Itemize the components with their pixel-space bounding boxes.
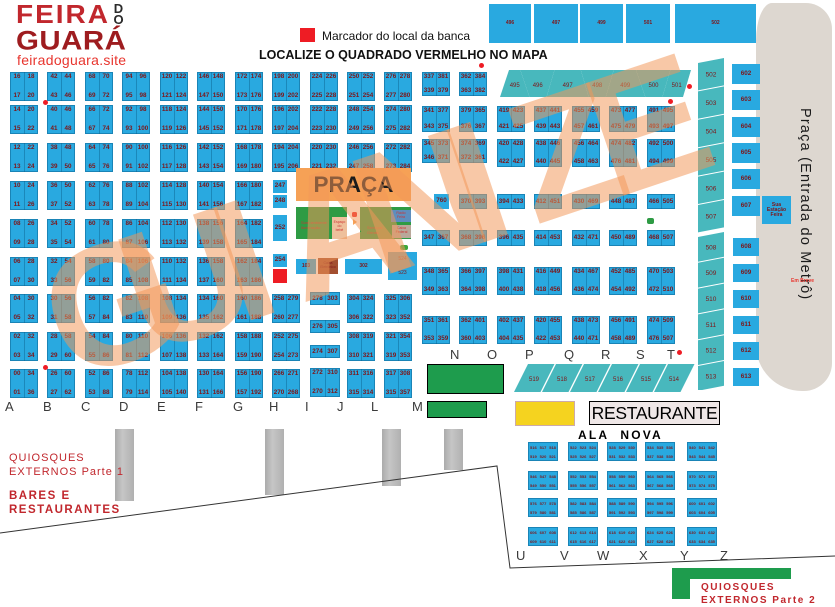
svg-text:499: 499 [620,83,631,89]
svg-text:510: 510 [706,296,717,303]
svg-text:518: 518 [557,377,568,383]
svg-text:496: 496 [533,83,544,89]
svg-text:513: 513 [706,373,717,380]
svg-text:512: 512 [706,348,717,355]
svg-text:516: 516 [613,377,624,383]
svg-text:497: 497 [563,83,574,89]
svg-text:500: 500 [648,83,659,89]
svg-text:511: 511 [706,322,717,329]
svg-text:502: 502 [706,72,717,79]
svg-text:515: 515 [641,377,652,383]
svg-text:508: 508 [706,244,717,251]
svg-text:495: 495 [510,83,521,89]
svg-text:504: 504 [706,129,717,136]
svg-text:517: 517 [585,377,596,383]
svg-text:514: 514 [669,377,680,383]
svg-text:503: 503 [706,100,717,107]
svg-text:509: 509 [706,270,717,277]
svg-text:505: 505 [706,157,717,164]
svg-text:507: 507 [706,214,717,221]
svg-text:519: 519 [529,377,540,383]
svg-text:498: 498 [592,83,603,89]
svg-text:506: 506 [706,185,717,192]
svg-text:501: 501 [672,83,683,89]
